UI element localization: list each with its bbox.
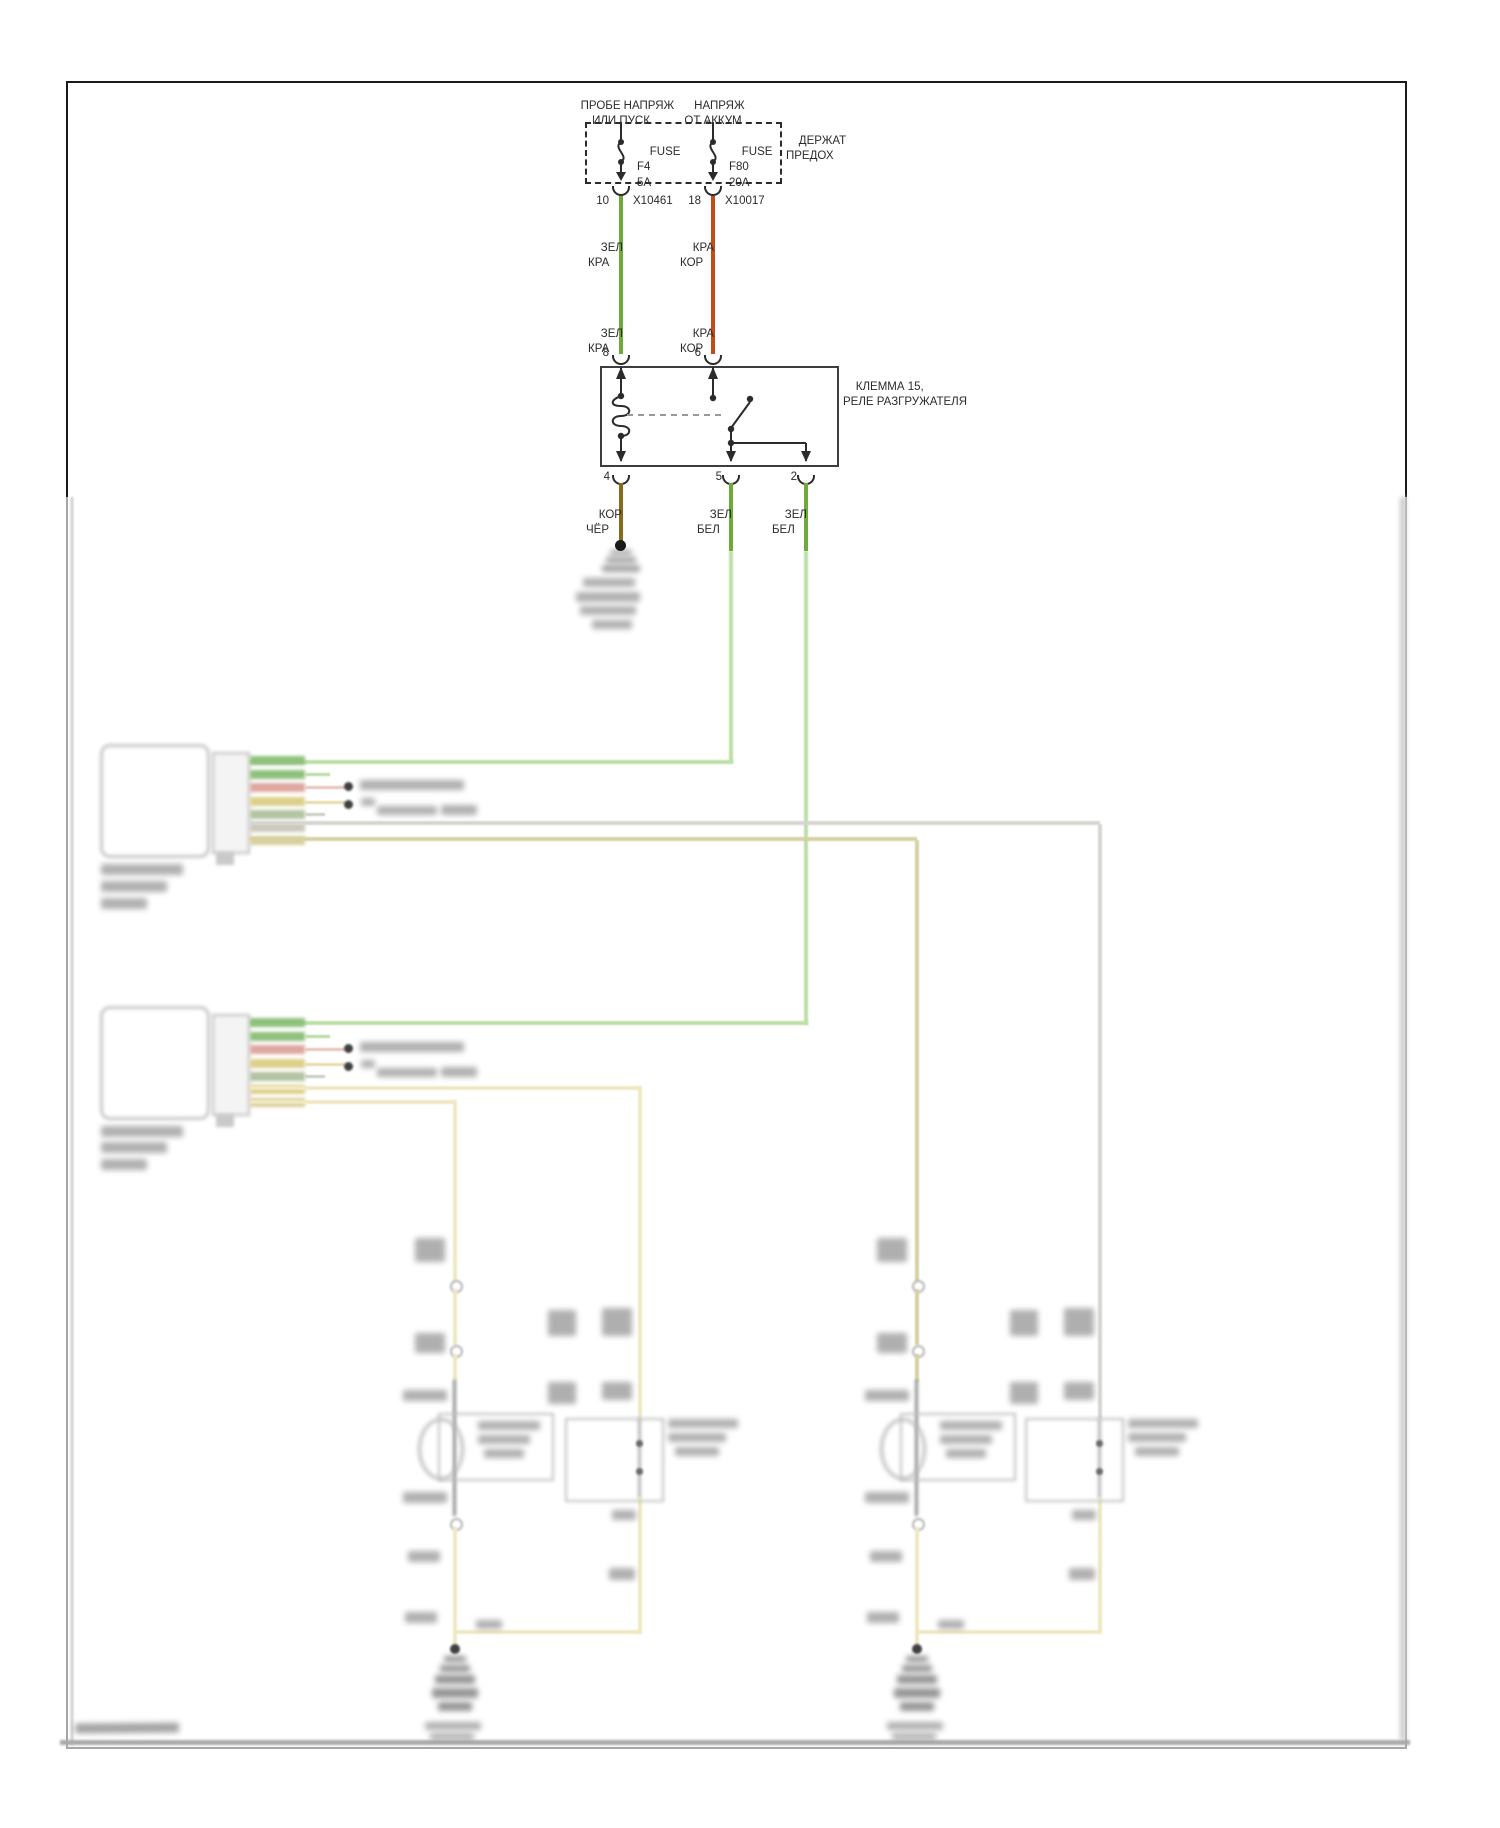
- branch-wire: [915, 1289, 919, 1345]
- pin-tag: [250, 756, 305, 765]
- pin-tag: [250, 770, 305, 779]
- relay-switch-arm-icon: [731, 402, 750, 428]
- module1-label-blur: [101, 864, 183, 875]
- wire-tag-blur: [938, 1620, 964, 1629]
- ground-symbol-left: [432, 1688, 478, 1698]
- wire-tag-blur: [403, 1390, 447, 1401]
- wire-label-kra-kor-a: КРАКОР: [680, 226, 714, 286]
- relay-label-blur: [940, 1435, 992, 1444]
- relay-coil-icon: [613, 396, 630, 436]
- wire-tag-blur: [548, 1382, 576, 1404]
- splice-label-blur: [360, 780, 464, 790]
- relay-pin-8: 8: [591, 346, 609, 361]
- ground-symbol-left: [440, 1665, 470, 1672]
- pin-tag: [250, 1072, 305, 1081]
- inline-connector: [450, 1280, 463, 1293]
- footer-text-blur: [75, 1723, 179, 1734]
- wire-tag-blur: [877, 1238, 907, 1262]
- wire-tag-blur: [612, 1510, 636, 1520]
- connector-code-x10017: X10017: [725, 194, 765, 209]
- stub-wire: [305, 1035, 330, 1038]
- blur-overlay: [0, 497, 1500, 1828]
- relay-label-blur: [946, 1449, 986, 1458]
- ground-label-blur: [583, 578, 635, 587]
- ground-label-blur: [425, 1722, 481, 1730]
- splice-dot: [344, 1062, 353, 1071]
- branch-wire: [453, 1289, 457, 1345]
- ground-label-blur: [576, 592, 640, 602]
- relay-pin-4: 4: [592, 470, 610, 485]
- wire-grey-long: [250, 821, 1100, 825]
- ground-symbol-right: [900, 1702, 934, 1711]
- ground-symbol-right: [906, 1656, 928, 1662]
- relay-label-blur: [675, 1447, 719, 1456]
- wire-yellow-long: [250, 1100, 455, 1104]
- ground-symbol-right: [902, 1665, 932, 1672]
- relay-label-blur: [940, 1421, 1002, 1430]
- wire-tag-blur: [1010, 1310, 1038, 1336]
- wire-label-zel-bel-1: ЗЕЛБЕЛ: [697, 493, 732, 553]
- ground-symbol-left: [444, 1656, 466, 1662]
- wire-tag-blur: [1010, 1382, 1038, 1404]
- relay-contact-dot: [636, 1440, 643, 1447]
- wire-olive-long: [250, 837, 917, 841]
- splice-dot: [344, 800, 353, 809]
- branch-wire: [453, 1354, 457, 1382]
- fuse-f4-icon: [605, 120, 637, 184]
- faded-left-border: [71, 497, 73, 1745]
- splice-dot: [344, 1044, 353, 1053]
- inline-connector: [912, 1280, 925, 1293]
- wire-tag-blur: [476, 1620, 502, 1629]
- fuse-holder-label: ДЕРЖАТПРЕДОХ: [786, 119, 846, 179]
- splice-label-blur: [361, 798, 375, 806]
- pin-tag: [250, 1032, 305, 1041]
- ground-junction-dot-left: [450, 1644, 460, 1654]
- wire-tag-blur: [403, 1492, 447, 1503]
- relay-contact-dot: [1096, 1468, 1103, 1475]
- branch-wire: [1098, 1498, 1102, 1634]
- fuse-f80-icon: [697, 120, 729, 184]
- splice-label-blur: [377, 806, 437, 815]
- relay-label-blur: [478, 1435, 530, 1444]
- branch-wire: [915, 1354, 919, 1382]
- faded-bottom-border: [60, 1740, 1410, 1745]
- relay-pin-6: 6: [683, 346, 701, 361]
- splice-dot: [344, 782, 353, 791]
- branch-wire: [1098, 824, 1102, 1418]
- wire-tag-blur: [1072, 1510, 1096, 1520]
- branch-wire: [638, 1086, 642, 1418]
- relay-a-left-coil: [418, 1418, 464, 1480]
- branch-wire: [453, 1527, 457, 1646]
- stub-wire: [305, 1048, 345, 1051]
- wire-green-faded-pin5-h: [250, 760, 733, 764]
- ground-symbol-right: [894, 1688, 940, 1698]
- branch-wire: [455, 1630, 640, 1634]
- wire-label-zel-bel-2: ЗЕЛБЕЛ: [772, 493, 807, 553]
- pin-tag: [250, 797, 305, 806]
- relay-label-blur: [668, 1419, 738, 1428]
- module2-connector: [212, 1014, 250, 1116]
- branch-wire: [915, 1527, 919, 1646]
- ground-symbol-right: [897, 1675, 937, 1684]
- wire-tag-blur: [865, 1492, 909, 1503]
- relay-contact-dot: [1096, 1440, 1103, 1447]
- relay-pin-5: 5: [704, 470, 722, 485]
- faded-right-border: [1400, 497, 1406, 1740]
- inline-connector: [450, 1518, 463, 1531]
- wire-tag-blur: [405, 1612, 437, 1623]
- module1-connector-tail: [216, 852, 234, 865]
- wire-label-zel-kra-a: ЗЕЛКРА: [588, 226, 623, 286]
- inline-connector: [912, 1345, 925, 1358]
- module1-label-blur: [101, 898, 147, 909]
- connector-pin-10: 10: [585, 194, 609, 209]
- ground-label-blur: [592, 620, 632, 629]
- module-box-1: [100, 744, 210, 858]
- wire-green-faded-pin2-h: [250, 1021, 808, 1025]
- module1-connector: [212, 752, 250, 854]
- wire-tag-blur: [548, 1310, 576, 1336]
- splice-label-blur: [377, 1068, 437, 1077]
- splice-label-blur: [441, 805, 477, 815]
- relay-b-right: [1025, 1418, 1124, 1502]
- wire-tag-blur: [1069, 1568, 1095, 1580]
- wire-yellow-long: [250, 1086, 640, 1090]
- relay-label-blur: [484, 1449, 524, 1458]
- stub-wire: [305, 1063, 345, 1066]
- branch-wire: [453, 1100, 457, 1282]
- branch-wire: [915, 840, 919, 1282]
- inline-connector: [912, 1518, 925, 1531]
- relay-label-blur: [1128, 1433, 1186, 1442]
- pin-tag: [250, 1045, 305, 1054]
- ground-label-blur: [430, 1733, 474, 1740]
- relay-label: КЛЕММА 15,РЕЛЕ РАЗГРУЖАТЕЛЯ: [843, 364, 967, 426]
- wire-tag-blur: [877, 1333, 907, 1353]
- module1-label-blur: [101, 881, 167, 892]
- module2-label-blur: [101, 1126, 183, 1137]
- wire-tag-blur: [602, 1308, 632, 1336]
- connector-code-x10461: X10461: [633, 194, 673, 209]
- stub-wire: [305, 773, 330, 776]
- relay-label-blur: [1135, 1447, 1179, 1456]
- wire-tag-blur: [415, 1333, 445, 1353]
- wire-tag-blur: [408, 1551, 440, 1562]
- wire-tag-blur: [602, 1382, 632, 1400]
- relay-internals: [600, 366, 835, 463]
- ground-label-blur: [887, 1722, 943, 1730]
- module2-label-blur: [101, 1142, 167, 1153]
- relay-label-blur: [478, 1421, 540, 1430]
- wire-green-faded-pin5: [729, 551, 733, 763]
- splice-label-blur: [441, 1067, 477, 1077]
- ground-label-blur: [892, 1733, 936, 1740]
- wire-tag-blur: [1064, 1308, 1094, 1336]
- branch-wire: [917, 1630, 1100, 1634]
- stub-wire: [305, 801, 345, 804]
- stub-wire: [305, 813, 325, 816]
- inline-connector: [450, 1345, 463, 1358]
- pin-tag: [250, 810, 305, 819]
- wire-tag-blur: [609, 1568, 635, 1580]
- module2-connector-tail: [216, 1114, 234, 1127]
- pin-tag: [250, 783, 305, 792]
- relay-b-left: [565, 1418, 664, 1502]
- wire-tag-blur: [1064, 1382, 1094, 1400]
- relay-contact-dot: [636, 1468, 643, 1475]
- relay-a-right-coil: [880, 1418, 926, 1480]
- stub-wire: [305, 786, 345, 789]
- ground-symbol: [606, 557, 636, 563]
- ground-symbol-left: [435, 1675, 475, 1684]
- wire-label-kor-cher: КОРЧЁР: [586, 493, 622, 553]
- relay-pin-2: 2: [779, 470, 797, 485]
- ground-symbol-left: [438, 1702, 472, 1711]
- branch-wire: [638, 1498, 642, 1634]
- relay-label-blur: [668, 1433, 726, 1442]
- ground-symbol: [602, 565, 640, 572]
- wiring-diagram-page: ПРОБЕ НАПРЯЖИЛИ ПУСК НАПРЯЖОТ АККУМ ДЕРЖ…: [0, 0, 1500, 1828]
- wire-tag-blur: [870, 1551, 902, 1562]
- relay-label-blur: [1128, 1419, 1198, 1428]
- splice-label-blur: [360, 1042, 464, 1052]
- splice-label-blur: [361, 1060, 375, 1068]
- module-box-2: [100, 1006, 210, 1120]
- stub-wire: [305, 1075, 325, 1078]
- ground-label-blur: [580, 606, 636, 615]
- wire-tag-blur: [415, 1238, 445, 1262]
- pin-tag: [250, 1018, 305, 1027]
- wire-green-faded-pin2: [804, 551, 808, 1025]
- wire-tag-blur: [865, 1390, 909, 1401]
- wire-tag-blur: [867, 1612, 899, 1623]
- module2-label-blur: [101, 1159, 147, 1170]
- ground-junction-dot-right: [912, 1644, 922, 1654]
- connector-pin-18: 18: [677, 194, 701, 209]
- pin-tag: [250, 1059, 305, 1068]
